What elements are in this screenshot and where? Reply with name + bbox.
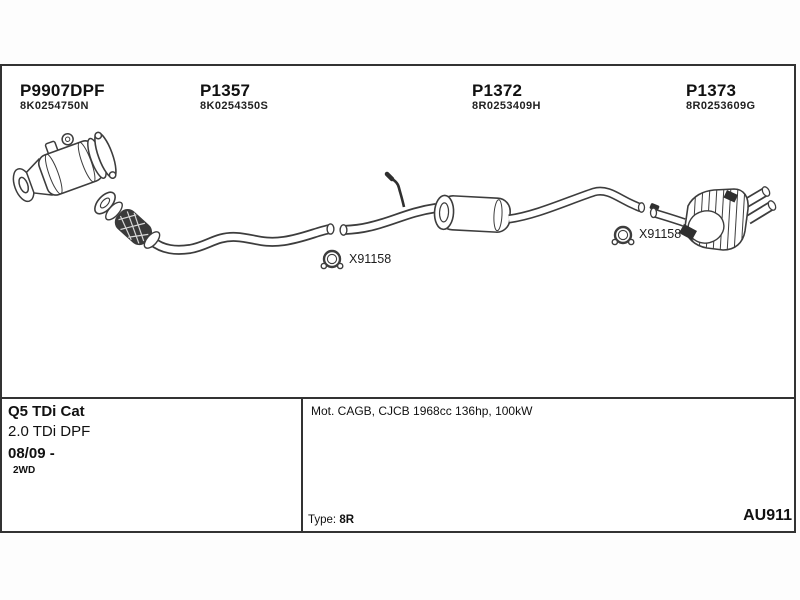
flex-pipe-drawing [91,189,162,251]
part-label-center-muffler: P1372 8R0253409H [472,82,541,112]
part-code: P9907DPF [20,82,105,100]
part-oem-number: 8R0253409H [472,100,541,112]
vehicle-model: Q5 TDi Cat [8,403,85,420]
clamp-icon [612,227,634,245]
hanger-rod-icon [387,174,404,207]
clamp-part-label: X91158 [639,227,681,241]
rear-muffler-inlet-drawing [649,203,684,223]
part-label-dpf: P9907DPF 8K0254750N [20,82,105,112]
vehicle-drive: 2WD [13,465,35,476]
type-value: 8R [339,514,354,526]
exhaust-system-drawing [0,0,800,600]
clamp-part-label: X91158 [349,252,391,266]
type-row: Type: 8R [308,514,354,526]
mid-pipe-drawing [340,208,436,235]
vehicle-period: 08/09 - [8,445,55,462]
engine-info: Mot. CAGB, CJCB 1968cc 136hp, 100kW [311,404,532,418]
part-code: P1373 [686,82,755,100]
part-oem-number: 8K0254750N [20,100,105,112]
rear-muffler-drawing [679,186,777,254]
part-oem-number: 8K0254350S [200,100,268,112]
part-label-rear-muffler: P1373 8R0253609G [686,82,755,112]
clamp-icon [321,251,343,269]
part-code: P1357 [200,82,268,100]
part-label-front-pipe: P1357 8K0254350S [200,82,268,112]
part-code: P1372 [472,82,541,100]
vehicle-engine: 2.0 TDi DPF [8,423,90,440]
catalog-reference: AU911 [743,507,792,525]
rear-pipe-drawing [509,191,645,219]
part-oem-number: 8R0253609G [686,100,755,112]
front-pipe-drawing [152,224,334,250]
exhaust-catalog-page: P9907DPF 8K0254750N P1357 8K0254350S P13… [0,0,800,600]
type-label: Type: [308,514,336,526]
center-muffler-drawing [434,195,511,233]
